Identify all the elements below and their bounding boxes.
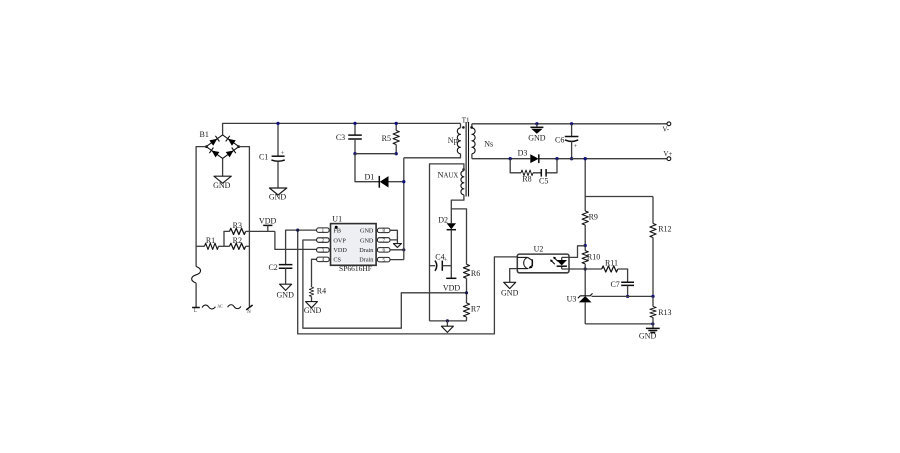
svg-text:FB: FB <box>333 228 341 235</box>
svg-text:R4: R4 <box>317 286 326 295</box>
svg-text:R6: R6 <box>471 269 480 278</box>
svg-text:Np: Np <box>448 136 458 145</box>
svg-text:VDD: VDD <box>259 216 277 225</box>
svg-text:U2: U2 <box>534 244 544 253</box>
svg-text:R2: R2 <box>233 236 242 245</box>
svg-text:C7: C7 <box>610 280 619 289</box>
svg-text:B1: B1 <box>200 130 209 139</box>
svg-text:GND: GND <box>639 331 657 340</box>
svg-text:+: + <box>574 143 578 150</box>
svg-text:SP6616HF: SP6616HF <box>339 264 372 273</box>
svg-text:GND: GND <box>304 306 322 315</box>
svg-text:U1: U1 <box>332 214 342 223</box>
svg-text:AC: AC <box>217 304 223 309</box>
svg-text:Drain: Drain <box>359 256 373 263</box>
svg-text:D3: D3 <box>518 148 528 157</box>
svg-text:C4: C4 <box>435 252 444 261</box>
svg-text:U3: U3 <box>567 294 577 303</box>
svg-text:GND: GND <box>277 291 295 300</box>
svg-text:N: N <box>247 310 251 315</box>
svg-text:R11: R11 <box>605 259 618 268</box>
svg-text:V+: V+ <box>663 150 672 158</box>
svg-text:L: L <box>194 309 197 314</box>
svg-text:R9: R9 <box>589 213 598 222</box>
svg-text:R13: R13 <box>658 308 671 317</box>
svg-text:GND: GND <box>501 288 519 297</box>
svg-text:D2: D2 <box>438 216 448 225</box>
svg-text:GND: GND <box>269 193 287 202</box>
svg-text:VDD: VDD <box>443 284 461 293</box>
svg-text:R3: R3 <box>233 221 242 230</box>
svg-text:R10: R10 <box>587 252 600 261</box>
svg-text:R5: R5 <box>382 134 391 143</box>
svg-text:Drain: Drain <box>359 247 373 254</box>
svg-text:GND: GND <box>360 228 374 235</box>
svg-text:R1: R1 <box>206 236 215 245</box>
svg-text:R7: R7 <box>471 305 480 314</box>
svg-text:C5: C5 <box>539 177 548 186</box>
svg-text:GND: GND <box>528 133 546 142</box>
svg-text:R8: R8 <box>522 174 531 183</box>
svg-text:C6: C6 <box>555 136 564 145</box>
svg-text:C2: C2 <box>268 263 277 272</box>
svg-text:V-: V- <box>662 126 669 134</box>
svg-text:CS: CS <box>333 256 341 263</box>
svg-text:OVP: OVP <box>333 237 346 244</box>
svg-text:Ns: Ns <box>484 140 493 149</box>
svg-text:C3: C3 <box>336 133 345 142</box>
svg-text:C1: C1 <box>259 153 268 162</box>
svg-text:+: + <box>281 150 285 157</box>
svg-text:D1: D1 <box>365 172 375 181</box>
svg-text:GND: GND <box>213 181 231 190</box>
svg-text:GND: GND <box>360 237 374 244</box>
svg-text:R12: R12 <box>658 225 671 234</box>
svg-text:VDD: VDD <box>333 247 347 254</box>
